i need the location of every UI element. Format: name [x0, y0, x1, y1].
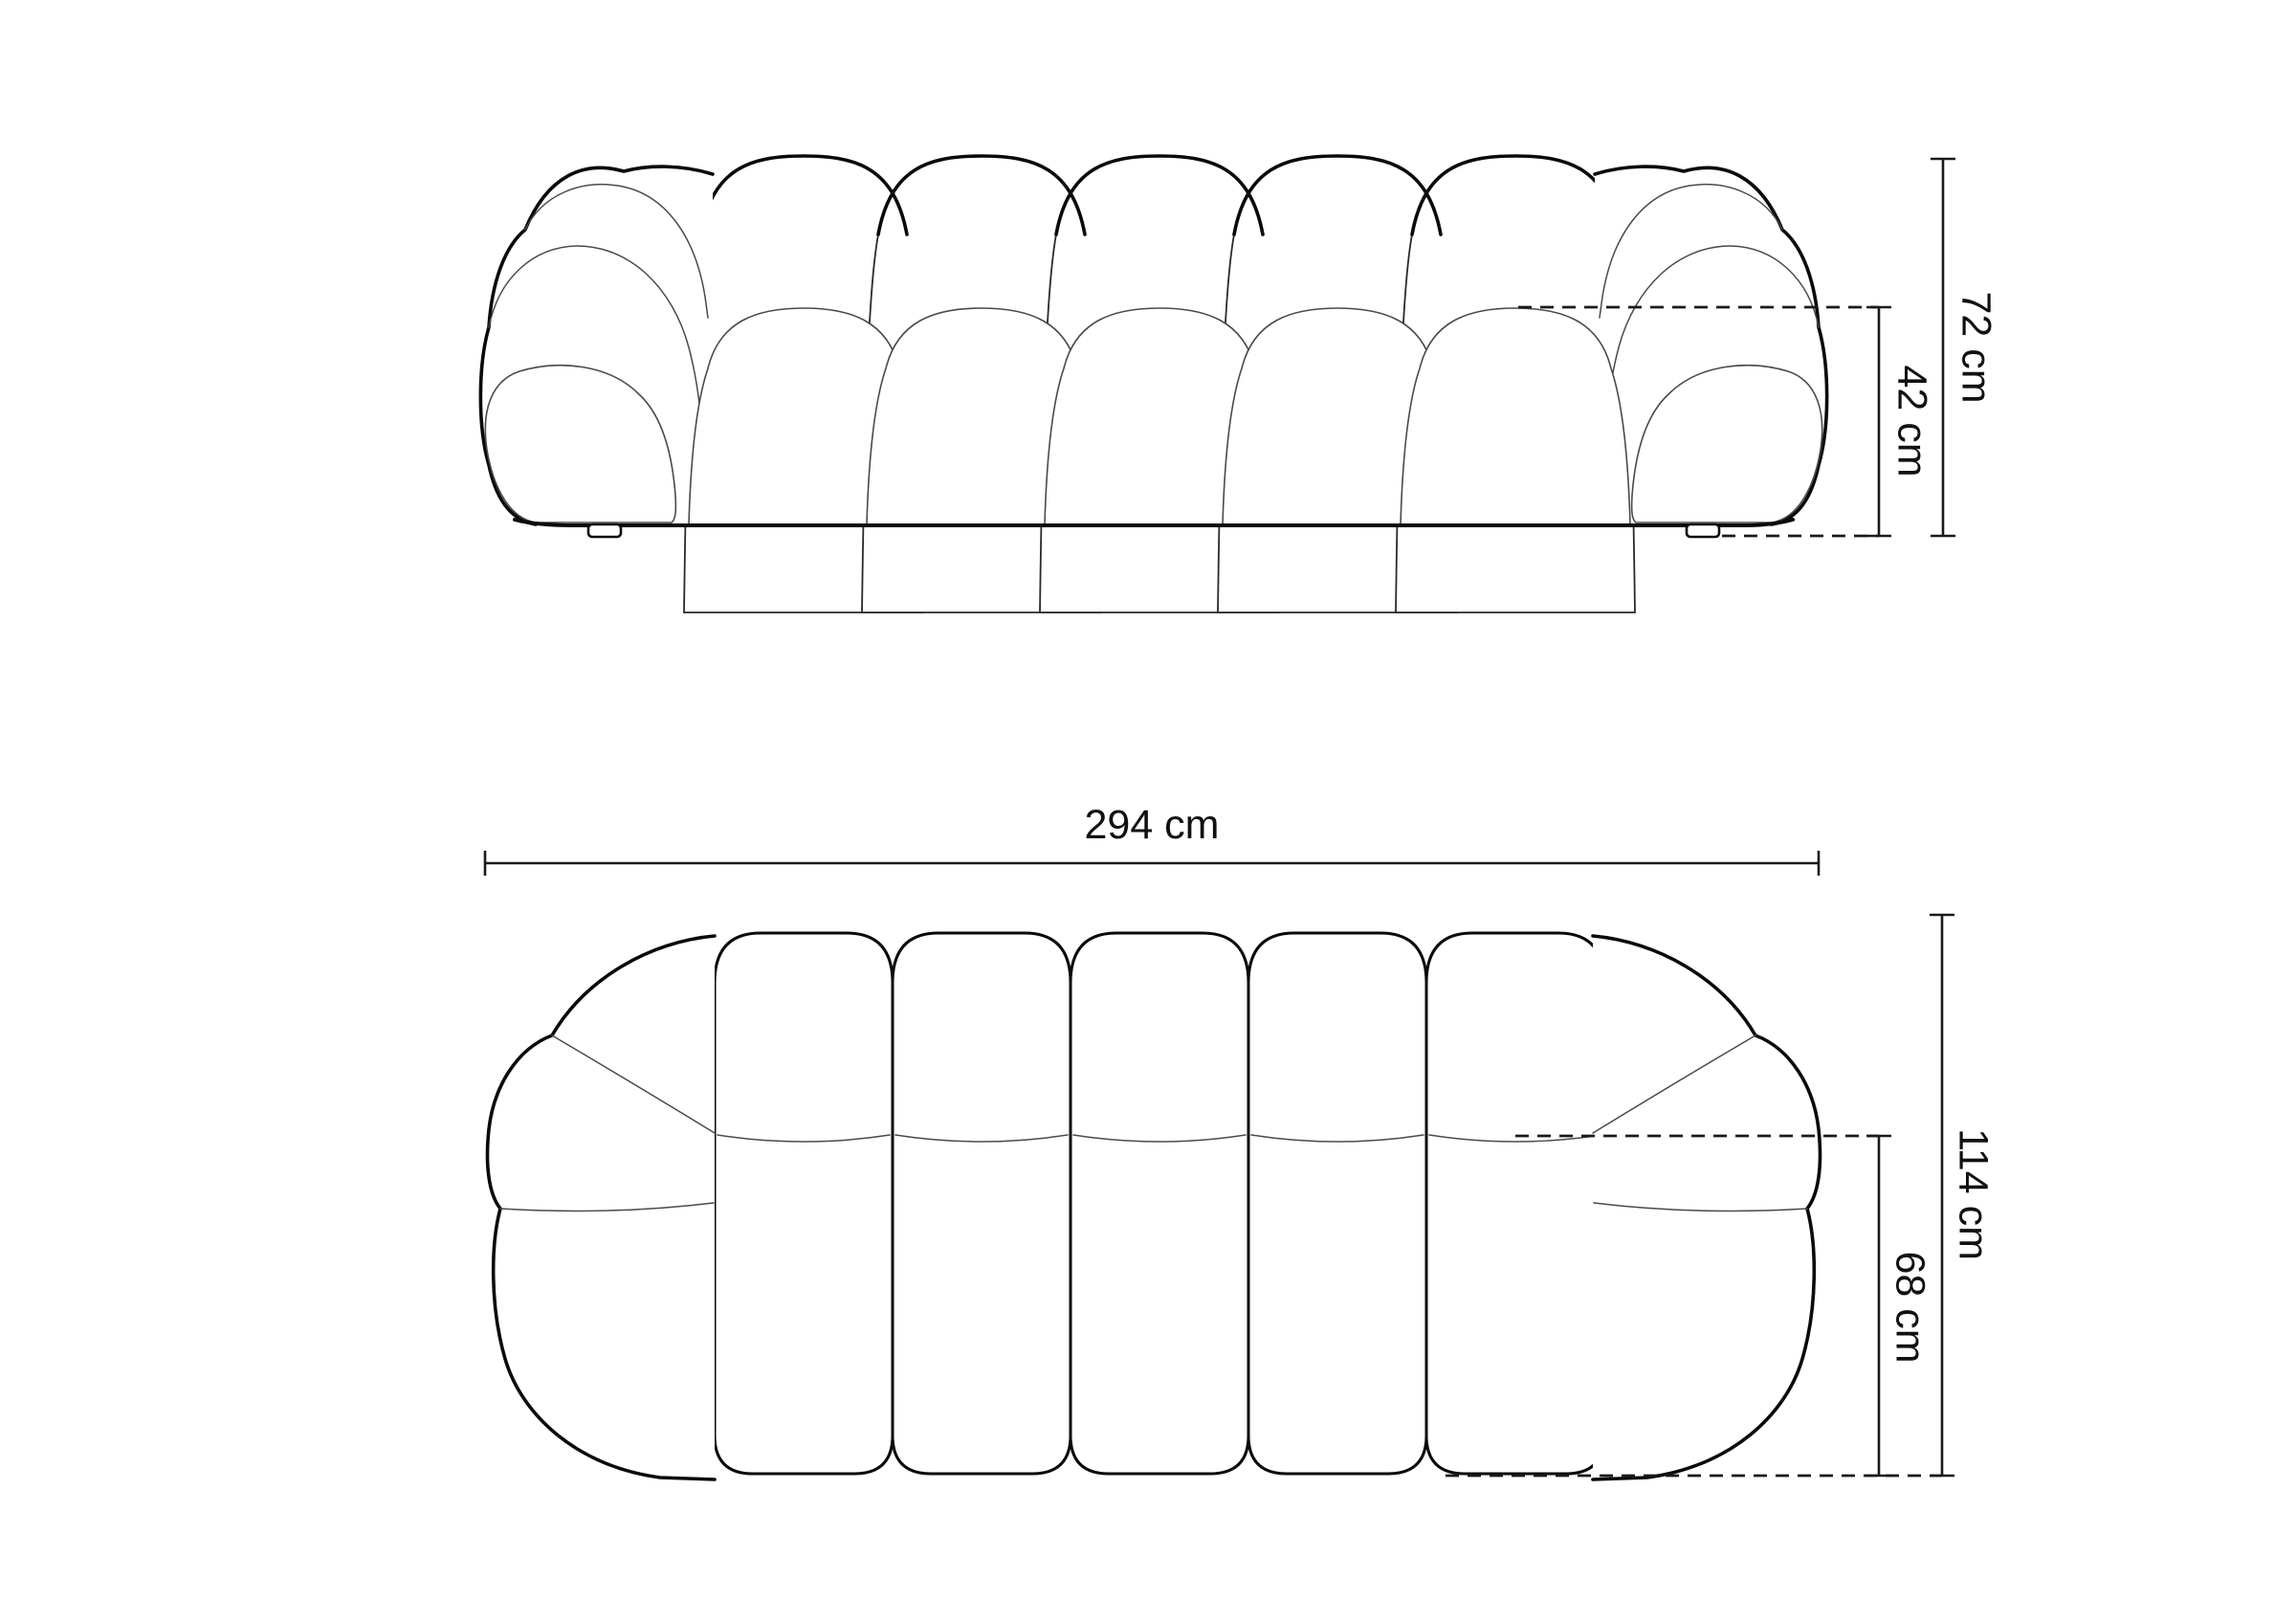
sofa-dimension-diagram: 72 cm 42 cm 294 cm 114 cm 68 cm — [0, 0, 2296, 1623]
front-right-foot — [1687, 524, 1719, 537]
plan-left-armrest — [488, 936, 716, 1479]
sofa-front-elevation — [480, 156, 1826, 612]
dim-line-overall-height — [1931, 159, 1955, 536]
dim-label-overall-depth: 114 cm — [1951, 1128, 1997, 1260]
dim-line-seat-height — [1866, 307, 1891, 536]
dim-line-overall-width — [485, 851, 1819, 876]
plan-cushion-columns — [715, 933, 1604, 1474]
front-seat-cushions — [689, 308, 1630, 524]
plan-right-armrest — [1593, 936, 1821, 1479]
diagram-svg: 72 cm 42 cm 294 cm 114 cm 68 cm — [0, 0, 2296, 1623]
sofa-top-plan — [488, 933, 1821, 1479]
front-left-foot — [588, 524, 621, 537]
dim-label-seat-height: 42 cm — [1889, 365, 1935, 477]
dim-label-overall-width: 294 cm — [1084, 802, 1219, 848]
dim-label-overall-height: 72 cm — [1954, 291, 1999, 403]
dim-label-seat-depth: 68 cm — [1888, 1251, 1933, 1363]
